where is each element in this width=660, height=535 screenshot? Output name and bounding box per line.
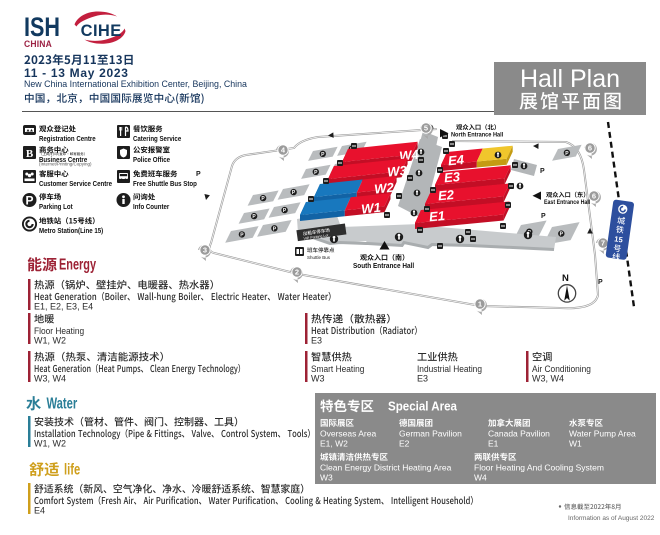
svg-text:E1, W2: E1, W2 <box>320 439 348 449</box>
svg-text:W3, W4: W3, W4 <box>34 373 66 383</box>
svg-text:W1: W1 <box>569 439 582 449</box>
svg-text:W1, W2: W1, W2 <box>34 438 66 448</box>
svg-text:E2: E2 <box>399 439 410 449</box>
svg-text:E3: E3 <box>443 169 461 186</box>
svg-text:W1, W2: W1, W2 <box>34 335 66 345</box>
svg-text:E1: E1 <box>488 439 499 449</box>
svg-text:N: N <box>562 273 569 284</box>
svg-text:2: 2 <box>295 268 299 277</box>
svg-text:W1: W1 <box>361 200 382 217</box>
svg-text:German Pavilion: German Pavilion <box>399 429 462 439</box>
svg-text:6: 6 <box>592 192 596 201</box>
svg-text:life: life <box>64 461 81 478</box>
svg-text:B: B <box>26 148 34 160</box>
svg-text:W4: W4 <box>474 473 487 483</box>
svg-text:Canada Pavilion: Canada Pavilion <box>488 429 550 439</box>
svg-text:Clean Energy District Heating: Clean Energy District Heating Area <box>320 463 452 473</box>
svg-text:Water: Water <box>47 395 78 412</box>
svg-text:3: 3 <box>203 246 207 255</box>
svg-text:South Entrance Hall: South Entrance Hall <box>353 263 414 270</box>
svg-text:W3: W3 <box>311 373 325 383</box>
svg-text:Energy: Energy <box>59 256 97 273</box>
svg-text:5: 5 <box>424 124 428 133</box>
svg-text:Water Pump Area: Water Pump Area <box>569 429 636 439</box>
svg-text:Information as of August 2022: Information as of August 2022 <box>568 515 655 522</box>
svg-text:E2: E2 <box>437 187 455 204</box>
svg-text:Special Area: Special Area <box>388 399 457 414</box>
svg-text:(Internet/Printing/Copying): (Internet/Printing/Copying) <box>39 162 92 167</box>
svg-text:E3: E3 <box>417 373 428 383</box>
svg-text:W3: W3 <box>320 473 333 483</box>
svg-text:P: P <box>25 194 33 208</box>
svg-text:E1, E2, E3, E4: E1, E2, E3, E4 <box>34 301 93 311</box>
svg-text:P: P <box>540 168 545 175</box>
svg-text:E1: E1 <box>428 208 445 224</box>
svg-text:E4: E4 <box>447 152 465 169</box>
svg-text:Shuttle Bus: Shuttle Bus <box>307 255 331 260</box>
svg-text:7: 7 <box>601 239 605 248</box>
svg-text:6: 6 <box>588 144 592 153</box>
svg-text:Floor Heating And Cooling Syst: Floor Heating And Cooling System <box>474 463 604 473</box>
svg-text:East Entrance Hall: East Entrance Hall <box>544 200 591 206</box>
svg-text:15: 15 <box>614 234 624 244</box>
svg-text:P: P <box>196 171 201 178</box>
svg-text:North Entrance Hall: North Entrance Hall <box>451 131 504 139</box>
svg-text:E4: E4 <box>34 505 45 515</box>
svg-text:Overseas Area: Overseas Area <box>320 429 376 439</box>
svg-text:W3, W4: W3, W4 <box>532 373 564 383</box>
svg-text:1: 1 <box>478 300 482 309</box>
svg-text:P: P <box>541 213 546 220</box>
svg-text:P: P <box>598 279 603 286</box>
svg-text:E3: E3 <box>311 335 322 345</box>
